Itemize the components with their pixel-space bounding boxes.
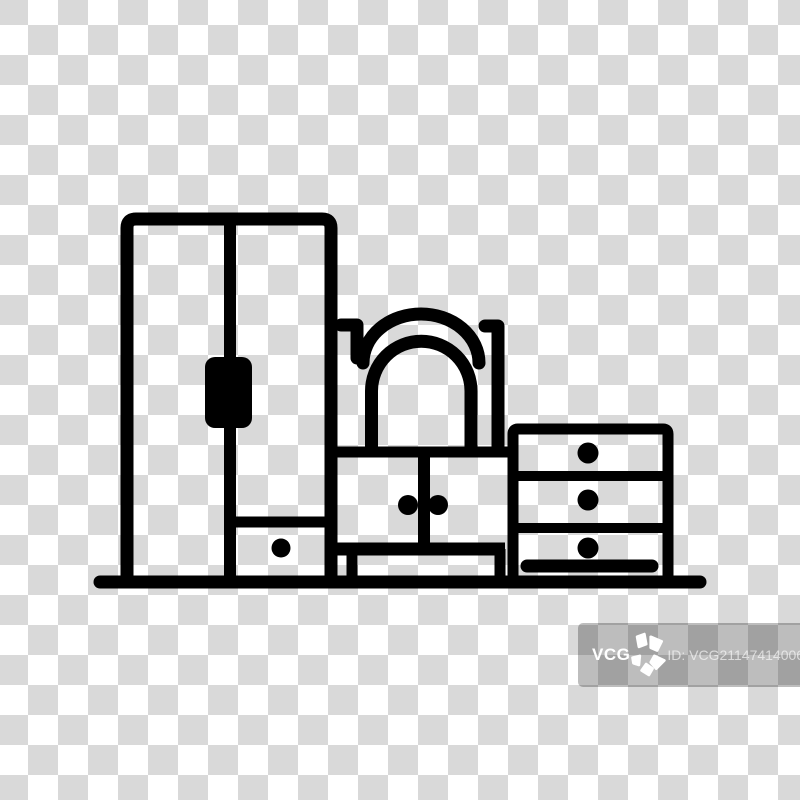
- watermark-badge: VCG ID: VCG211474140066: [578, 623, 800, 687]
- vcg-logo-text: VCG: [592, 645, 630, 665]
- mirror-right-support: [485, 326, 498, 449]
- pinwheel-flower-icon: [628, 630, 668, 680]
- dresser-door-knob-left: [398, 495, 418, 515]
- dressing-table-icon: [331, 314, 511, 578]
- transparent-checkerboard-background: VCG ID: VCG211474140066: [0, 0, 800, 800]
- chest-knob-3: [578, 538, 599, 559]
- wardrobe-handle: [205, 357, 252, 428]
- wardrobe-icon: [127, 219, 331, 585]
- chest-of-drawers-icon: [513, 429, 668, 585]
- mirror-left-support: [341, 325, 357, 358]
- chest-knob-2: [578, 490, 599, 511]
- image-id-text: ID: VCG211474140066: [667, 647, 800, 663]
- chest-knob-1: [578, 443, 599, 464]
- dresser-door-knob-right: [428, 495, 448, 515]
- mirror-frame-arch: [372, 341, 472, 450]
- wardrobe-drawer-knob: [272, 539, 291, 558]
